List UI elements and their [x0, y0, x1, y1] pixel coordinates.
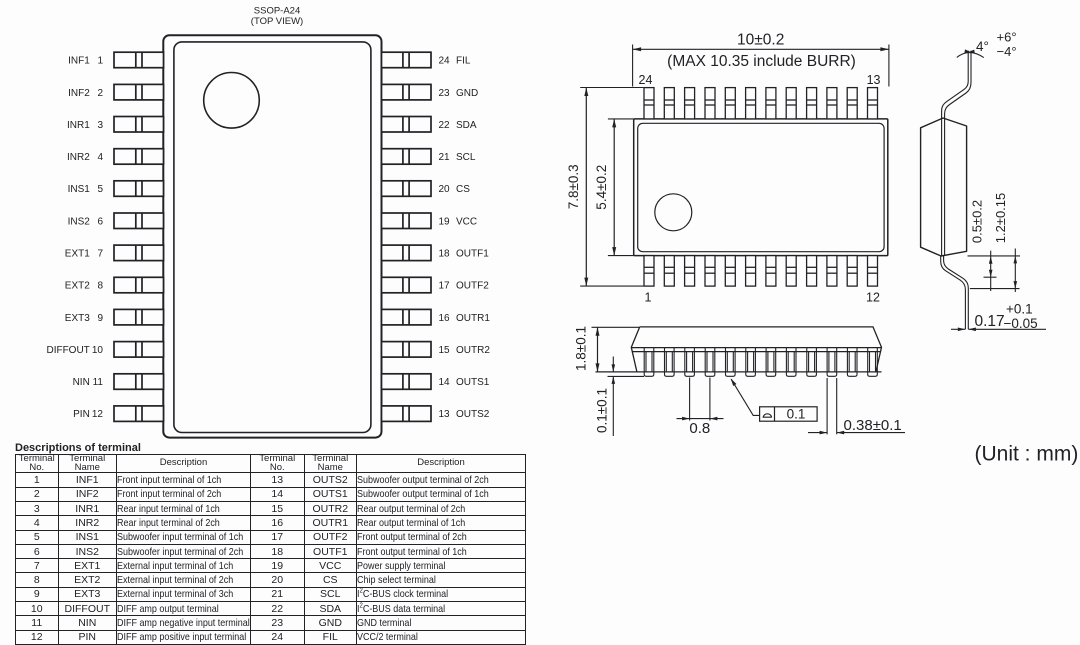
svg-text:DIFFOUT: DIFFOUT	[46, 345, 89, 356]
svg-text:CS: CS	[456, 184, 470, 195]
svg-text:0.38±0.1: 0.38±0.1	[844, 417, 902, 434]
svg-text:EXT1: EXT1	[65, 249, 90, 260]
svg-text:23: 23	[439, 88, 451, 99]
svg-text:OUTF1: OUTF1	[456, 249, 489, 260]
svg-text:1.2±0.15: 1.2±0.15	[993, 193, 1008, 244]
svg-text:8: 8	[97, 281, 103, 292]
svg-text:15: 15	[439, 345, 451, 356]
svg-text:+0.1: +0.1	[1006, 302, 1033, 317]
svg-text:INR1: INR1	[67, 120, 90, 131]
svg-text:SDA: SDA	[456, 120, 477, 131]
svg-text:OUTR1: OUTR1	[456, 313, 490, 324]
svg-text:INF2: INF2	[68, 88, 90, 99]
svg-text:EXT3: EXT3	[65, 313, 90, 324]
svg-text:5: 5	[97, 184, 103, 195]
svg-text:7: 7	[97, 249, 103, 260]
svg-text:17: 17	[439, 281, 451, 292]
svg-text:INS2: INS2	[68, 216, 91, 227]
svg-text:1: 1	[97, 56, 103, 67]
svg-text:24: 24	[639, 73, 653, 87]
svg-text:2: 2	[97, 88, 103, 99]
svg-text:13: 13	[867, 73, 881, 87]
svg-text:10: 10	[92, 345, 104, 356]
svg-text:−4°: −4°	[997, 44, 1017, 59]
svg-text:4: 4	[97, 152, 103, 163]
svg-text:VCC: VCC	[456, 216, 477, 227]
svg-text:INR2: INR2	[67, 152, 90, 163]
svg-text:SCL: SCL	[456, 152, 476, 163]
svg-text:22: 22	[439, 120, 451, 131]
svg-text:20: 20	[439, 184, 451, 195]
svg-text:0.5±0.2: 0.5±0.2	[969, 200, 984, 243]
svg-text:EXT2: EXT2	[65, 281, 90, 292]
svg-text:(Unit : mm): (Unit : mm)	[975, 443, 1079, 466]
svg-text:−0.05: −0.05	[1004, 316, 1038, 331]
svg-text:OUTR2: OUTR2	[456, 345, 490, 356]
svg-text:(TOP VIEW): (TOP VIEW)	[251, 16, 303, 27]
svg-text:PIN: PIN	[73, 409, 90, 420]
svg-text:12: 12	[866, 291, 880, 305]
svg-text:+6°: +6°	[997, 30, 1017, 45]
svg-text:21: 21	[439, 152, 451, 163]
svg-text:3: 3	[97, 120, 103, 131]
svg-text:(MAX 10.35 include BURR): (MAX 10.35 include BURR)	[667, 53, 856, 70]
svg-text:INS1: INS1	[68, 184, 91, 195]
svg-text:1: 1	[645, 291, 652, 305]
svg-text:5.4±0.2: 5.4±0.2	[594, 165, 609, 210]
svg-text:NIN: NIN	[73, 377, 90, 388]
svg-text:10±0.2: 10±0.2	[737, 32, 784, 49]
svg-text:OUTS1: OUTS1	[456, 377, 490, 388]
svg-text:0.1: 0.1	[787, 406, 806, 421]
svg-text:0.17: 0.17	[975, 313, 1005, 330]
svg-text:16: 16	[439, 313, 451, 324]
svg-text:7.8±0.3: 7.8±0.3	[566, 164, 581, 209]
svg-text:0.1±0.1: 0.1±0.1	[595, 388, 610, 433]
svg-text:14: 14	[439, 377, 451, 388]
svg-text:SSOP-A24: SSOP-A24	[254, 6, 300, 17]
svg-text:19: 19	[439, 216, 451, 227]
svg-text:1.8±0.1: 1.8±0.1	[573, 326, 588, 371]
svg-text:FIL: FIL	[456, 56, 471, 67]
svg-text:18: 18	[439, 249, 451, 260]
svg-text:24: 24	[439, 56, 451, 67]
svg-text:6: 6	[97, 216, 103, 227]
svg-text:OUTF2: OUTF2	[456, 281, 489, 292]
svg-text:9: 9	[97, 313, 103, 324]
svg-text:11: 11	[93, 377, 104, 388]
svg-text:0.8: 0.8	[689, 420, 710, 437]
svg-text:INF1: INF1	[68, 56, 90, 67]
svg-text:OUTS2: OUTS2	[456, 409, 490, 420]
svg-text:13: 13	[439, 409, 451, 420]
svg-text:GND: GND	[456, 88, 478, 99]
svg-text:12: 12	[92, 409, 104, 420]
svg-text:4°: 4°	[976, 39, 989, 54]
